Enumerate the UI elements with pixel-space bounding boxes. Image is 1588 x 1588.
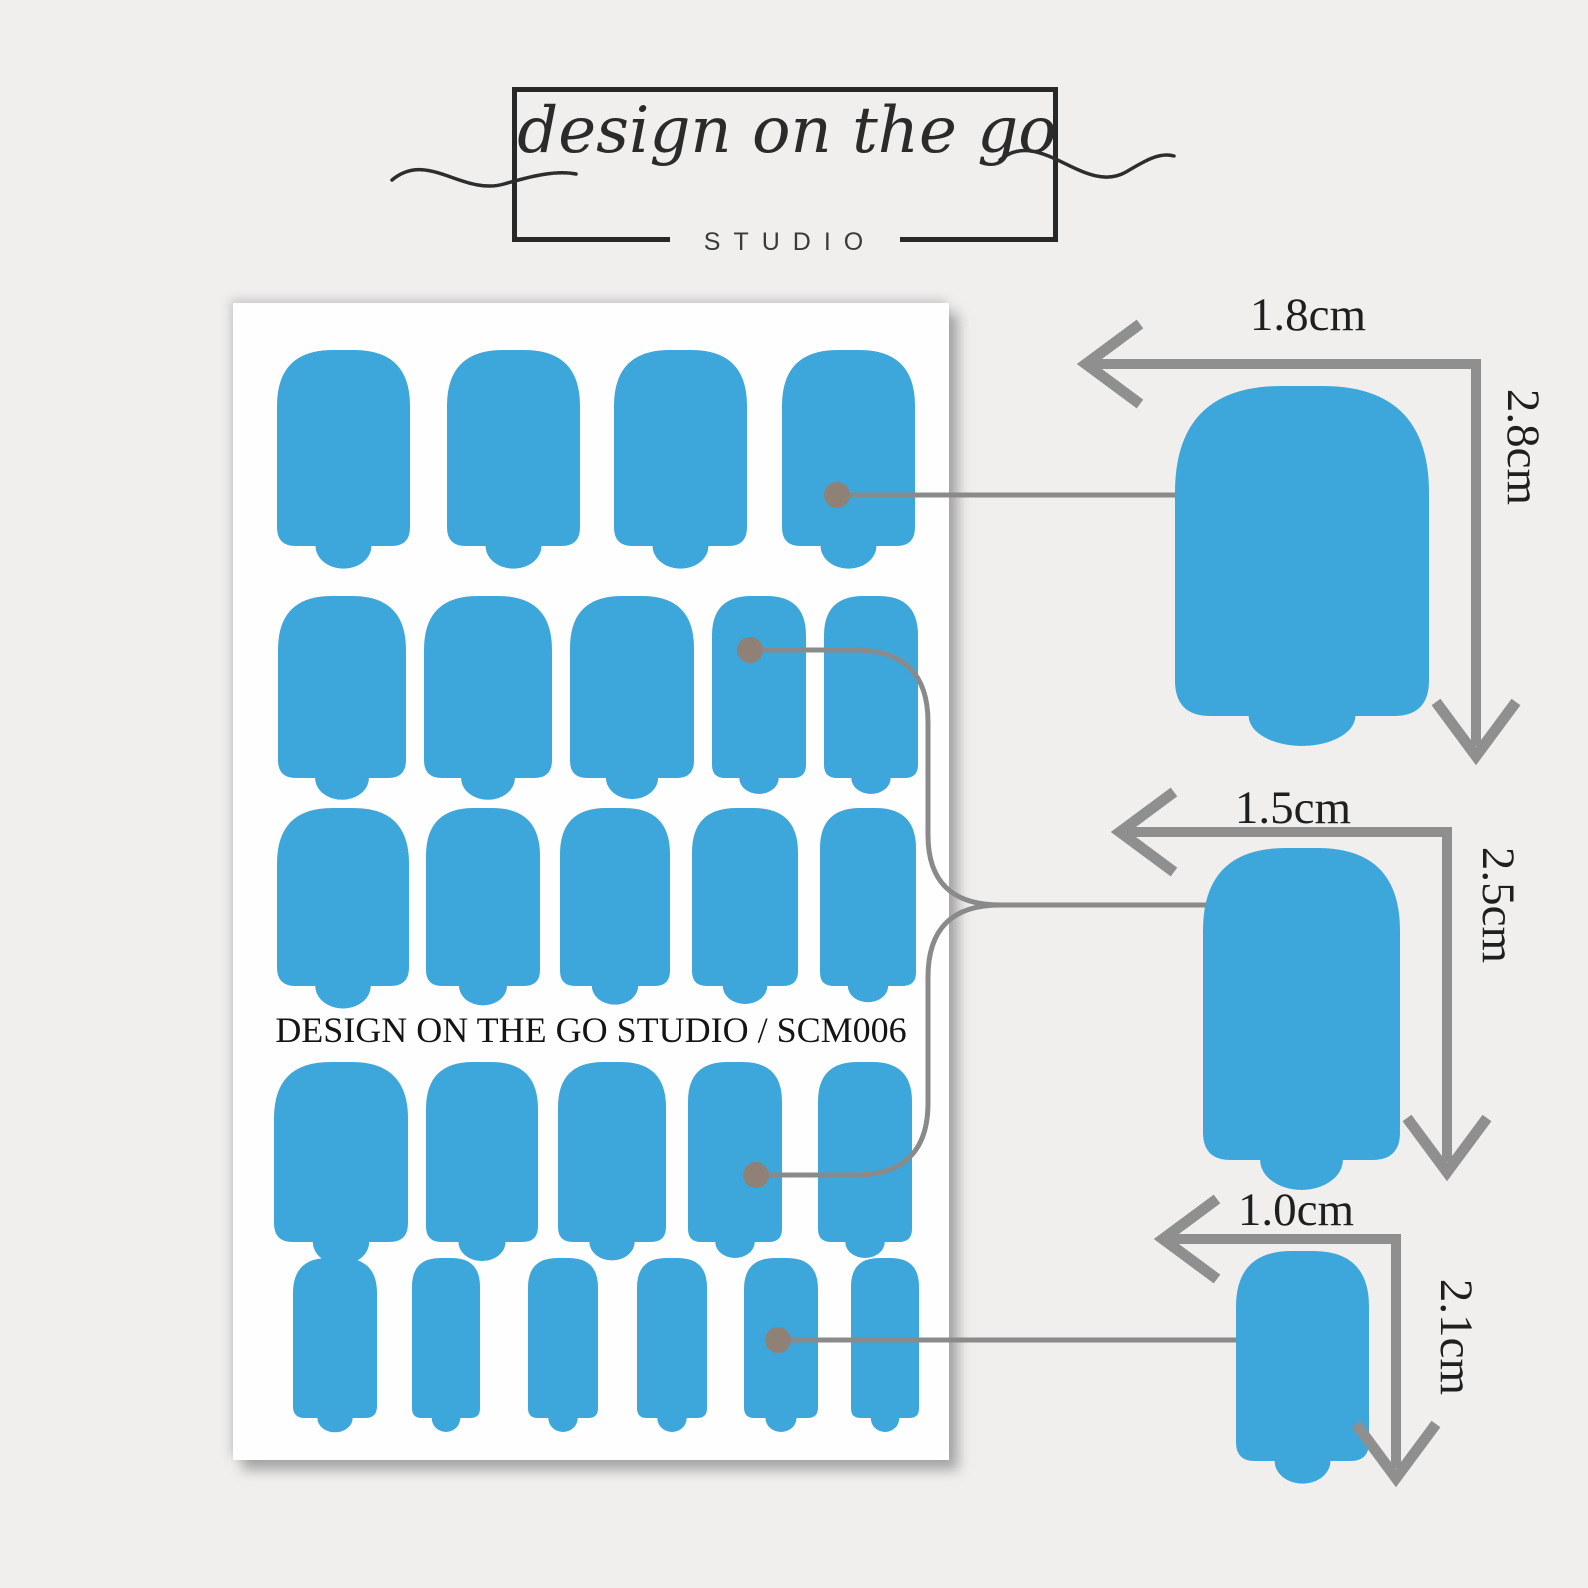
nail-decal-row2-4 — [712, 596, 806, 794]
nail-decal-row5-3 — [528, 1258, 598, 1432]
nail-decal-row3-4 — [692, 808, 798, 1004]
connector-dot-small-link-sheet — [765, 1327, 791, 1353]
nail-decal-row5-6 — [851, 1258, 919, 1432]
sheet-nail-decals — [274, 350, 919, 1432]
connector-dot-large-link-sheet — [824, 482, 850, 508]
height-label-medium: 2.5cm — [1472, 847, 1524, 963]
logo-swashes — [392, 150, 1174, 186]
nail-decal-row4-2 — [426, 1062, 538, 1261]
width-label-small: 1.0cm — [1238, 1184, 1354, 1236]
diagram-overlay: 1.8cm 2.8cm 1.5cm 2.5cm 1.0cm 2.1cm — [0, 0, 1588, 1588]
connector-dot-medium-link-bottom-sheet — [743, 1162, 769, 1188]
nail-decal-row4-5 — [818, 1062, 912, 1258]
logo-swash-right-icon — [1000, 150, 1174, 177]
nail-decal-row2-1 — [278, 596, 406, 800]
nail-decal-row5-2 — [412, 1258, 480, 1432]
connector-dot-medium-link-top-sheet — [737, 637, 763, 663]
nail-decal-row4-3 — [558, 1062, 666, 1260]
sample-nail-small — [1236, 1251, 1369, 1484]
sample-nail-shapes — [1175, 386, 1429, 1484]
nail-decal-row1-3 — [614, 350, 747, 569]
nail-decal-row5-1 — [293, 1258, 377, 1432]
nail-decal-row4-1 — [274, 1062, 408, 1265]
sample-nail-large — [1175, 386, 1429, 746]
nail-decal-row3-3 — [560, 808, 670, 1005]
nail-decal-row1-2 — [447, 350, 580, 569]
logo-swash-left-icon — [392, 170, 576, 186]
product-image-canvas: design on the go STUDIO DESIGN ON THE GO… — [0, 0, 1588, 1588]
height-label-large: 2.8cm — [1497, 389, 1549, 505]
nail-decal-row2-2 — [424, 596, 552, 800]
width-label-medium: 1.5cm — [1235, 782, 1351, 834]
nail-decal-row4-4 — [688, 1062, 782, 1258]
width-label-large: 1.8cm — [1250, 289, 1366, 341]
sample-nail-medium — [1203, 848, 1400, 1190]
nail-decal-row1-1 — [277, 350, 410, 569]
nail-decal-row2-3 — [570, 596, 694, 799]
nail-decal-row5-4 — [637, 1258, 707, 1432]
nail-decal-row3-5 — [820, 808, 916, 1002]
nail-decal-row3-2 — [426, 808, 540, 1005]
nail-decal-row2-5 — [824, 596, 918, 794]
height-label-small: 2.1cm — [1430, 1279, 1482, 1395]
nail-decal-row3-1 — [277, 808, 409, 1008]
nail-decal-row1-4 — [782, 350, 915, 569]
